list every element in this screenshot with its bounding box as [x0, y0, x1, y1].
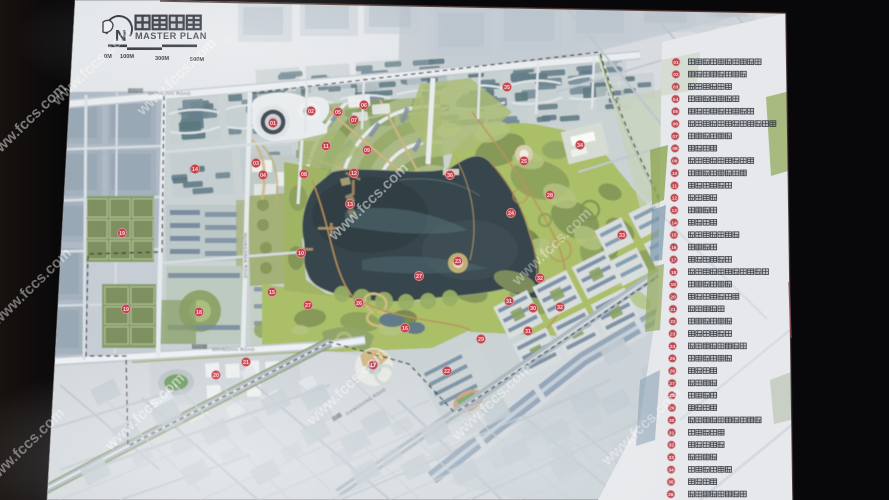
svg-text:13: 13 [672, 208, 678, 214]
svg-text:18: 18 [196, 310, 202, 316]
svg-text:33: 33 [619, 233, 625, 239]
svg-text:06: 06 [673, 122, 679, 128]
svg-text:19: 19 [123, 307, 129, 313]
svg-text:20: 20 [671, 294, 677, 300]
svg-text:23: 23 [455, 259, 461, 265]
svg-text:03: 03 [253, 161, 259, 167]
svg-text:09: 09 [672, 159, 678, 165]
svg-text:01: 01 [270, 121, 276, 127]
svg-text:23: 23 [670, 332, 676, 338]
svg-text:29: 29 [478, 337, 484, 343]
svg-text:27: 27 [416, 274, 422, 280]
svg-text:10: 10 [298, 251, 304, 257]
svg-text:19: 19 [119, 231, 125, 237]
svg-text:24: 24 [508, 211, 514, 217]
svg-text:14: 14 [192, 167, 198, 173]
svg-text:19: 19 [671, 282, 677, 288]
svg-text:02: 02 [673, 72, 679, 78]
svg-text:15: 15 [671, 233, 677, 239]
svg-text:06: 06 [361, 103, 367, 109]
svg-text:34: 34 [577, 143, 583, 149]
svg-text:22: 22 [670, 319, 676, 325]
svg-text:03: 03 [673, 85, 679, 91]
svg-text:05: 05 [673, 109, 679, 115]
svg-text:21: 21 [670, 307, 676, 313]
svg-text:HUANGSHAN ROAD: HUANGSHAN ROAD [243, 233, 248, 279]
svg-text:32: 32 [557, 305, 563, 311]
svg-text:15: 15 [269, 290, 275, 296]
svg-text:36: 36 [447, 173, 453, 179]
svg-text:17: 17 [671, 257, 677, 263]
svg-text:08: 08 [301, 172, 307, 178]
svg-text:10: 10 [672, 171, 678, 177]
svg-text:07: 07 [672, 134, 678, 140]
svg-text:04: 04 [260, 173, 266, 179]
svg-text:18: 18 [671, 270, 677, 276]
svg-text:14: 14 [671, 220, 677, 226]
svg-text:35: 35 [504, 85, 510, 91]
svg-text:11: 11 [323, 144, 329, 150]
svg-text:27: 27 [305, 303, 311, 309]
svg-text:01: 01 [673, 60, 679, 66]
svg-text:30: 30 [530, 306, 536, 312]
svg-text:32: 32 [537, 276, 543, 282]
svg-text:24: 24 [670, 344, 676, 350]
svg-text:22: 22 [444, 369, 450, 375]
svg-text:08: 08 [672, 146, 678, 152]
svg-text:16: 16 [402, 326, 408, 332]
svg-text:05: 05 [335, 110, 341, 116]
svg-text:07: 07 [351, 118, 357, 124]
svg-text:31: 31 [506, 299, 512, 305]
svg-text:26: 26 [670, 369, 676, 375]
svg-text:09: 09 [364, 148, 370, 154]
svg-text:16: 16 [671, 245, 677, 251]
svg-text:04: 04 [673, 97, 679, 103]
svg-text:31: 31 [525, 329, 531, 335]
svg-text:25: 25 [521, 159, 527, 165]
svg-text:12: 12 [351, 171, 357, 177]
svg-text:28: 28 [547, 193, 553, 199]
svg-text:11: 11 [672, 183, 677, 189]
svg-text:26: 26 [356, 301, 362, 307]
svg-text:12: 12 [672, 196, 678, 202]
svg-text:25: 25 [670, 356, 676, 362]
